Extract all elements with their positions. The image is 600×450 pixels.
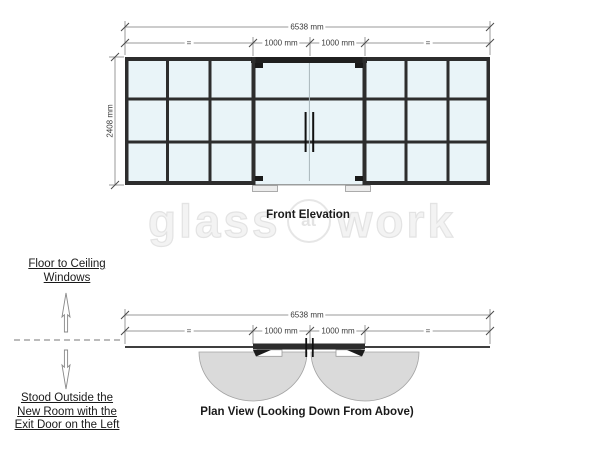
elevation-equal-right-dim: = xyxy=(424,39,433,48)
base-frame-left xyxy=(125,181,255,185)
meeting-stile-mark xyxy=(312,338,314,357)
elevation-equal-left-dim: = xyxy=(185,39,194,48)
door-header xyxy=(251,57,367,63)
base-frame-right xyxy=(363,181,490,185)
mullion xyxy=(405,57,408,185)
elevation-total-width-dim: 6538 mm xyxy=(288,23,325,32)
mullion xyxy=(209,57,212,185)
glass-wall xyxy=(125,57,490,185)
elevation-door-right-dim: 1000 mm xyxy=(319,39,356,48)
plan-door-right-dim: 1000 mm xyxy=(319,327,356,336)
drawing-linework xyxy=(0,0,600,450)
front-elevation-view xyxy=(125,57,490,192)
floor-spring-cover xyxy=(346,186,371,192)
door-jamb-left xyxy=(252,57,256,185)
door-swing-arc-left xyxy=(199,352,307,401)
mullion xyxy=(166,57,169,185)
door-handle-left xyxy=(305,112,307,152)
note-floor-to-ceiling: Floor to Ceiling Windows xyxy=(12,258,122,285)
plan-door-bar xyxy=(253,344,365,350)
meeting-stile-mark xyxy=(305,338,307,357)
frame-right-edge xyxy=(487,57,491,185)
door-jamb-right xyxy=(363,57,367,185)
patch-fitting-icon xyxy=(255,63,263,68)
annotation-graphics xyxy=(14,293,123,389)
up-arrow-icon xyxy=(62,293,70,332)
frame-left-edge xyxy=(125,57,129,185)
patch-fitting-icon xyxy=(255,176,263,181)
down-arrow-icon xyxy=(62,350,70,389)
patch-fitting-icon xyxy=(355,176,363,181)
plan-equal-left-dim: = xyxy=(185,327,194,336)
plan-door-left-dim: 1000 mm xyxy=(262,327,299,336)
technical-drawing-page: glass at work xyxy=(0,0,600,450)
patch-fitting-icon xyxy=(355,63,363,68)
plan-equal-right-dim: = xyxy=(424,327,433,336)
transom-bar xyxy=(125,98,490,101)
front-elevation-label: Front Elevation xyxy=(266,209,350,221)
floor-spring-cover xyxy=(253,186,278,192)
door-swing-arc-right xyxy=(311,352,419,401)
door-meeting-gap xyxy=(309,63,310,181)
door-handle-right xyxy=(312,112,314,152)
note-stood-outside: Stood Outside the New Room with the Exit… xyxy=(10,392,124,433)
plan-total-width-dim: 6538 mm xyxy=(288,311,325,320)
plan-view xyxy=(125,338,490,401)
elevation-door-left-dim: 1000 mm xyxy=(262,39,299,48)
plan-view-label: Plan View (Looking Down From Above) xyxy=(200,406,413,418)
transom-bar xyxy=(125,141,490,144)
mullion xyxy=(447,57,450,185)
elevation-height-dim: 2408 mm xyxy=(106,102,115,139)
